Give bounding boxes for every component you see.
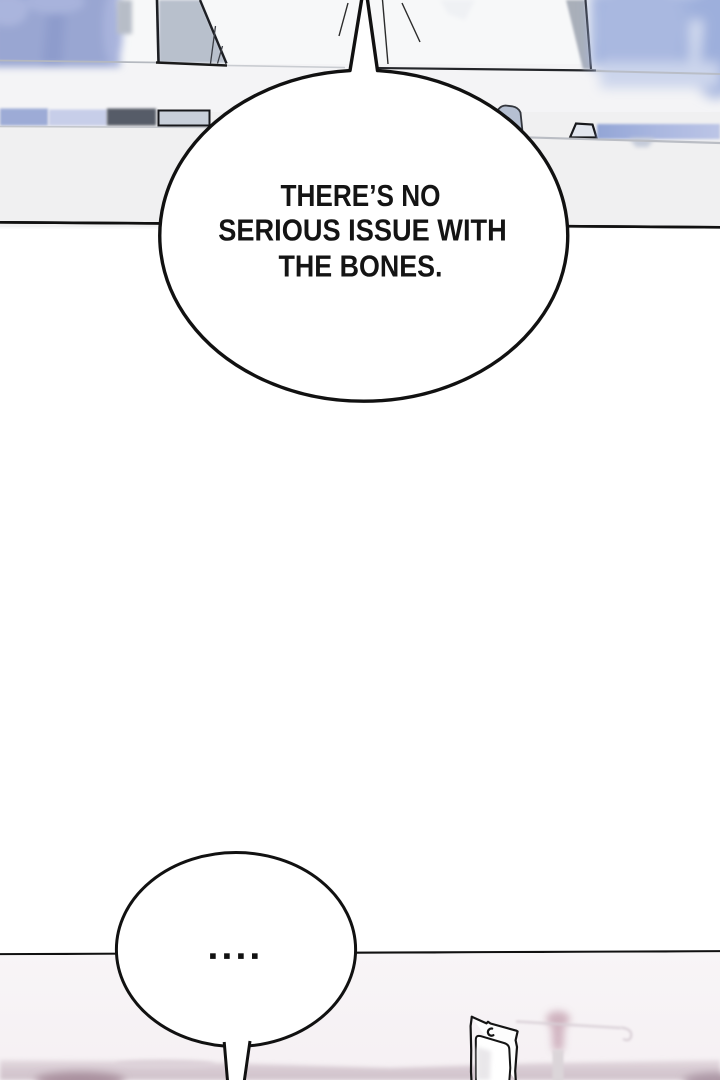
svg-text:THERE’S NO: THERE’S NO (281, 179, 441, 213)
svg-text:SERIOUS ISSUE WITH: SERIOUS ISSUE WITH (218, 214, 507, 248)
svg-text:THE BONES.: THE BONES. (279, 249, 443, 283)
